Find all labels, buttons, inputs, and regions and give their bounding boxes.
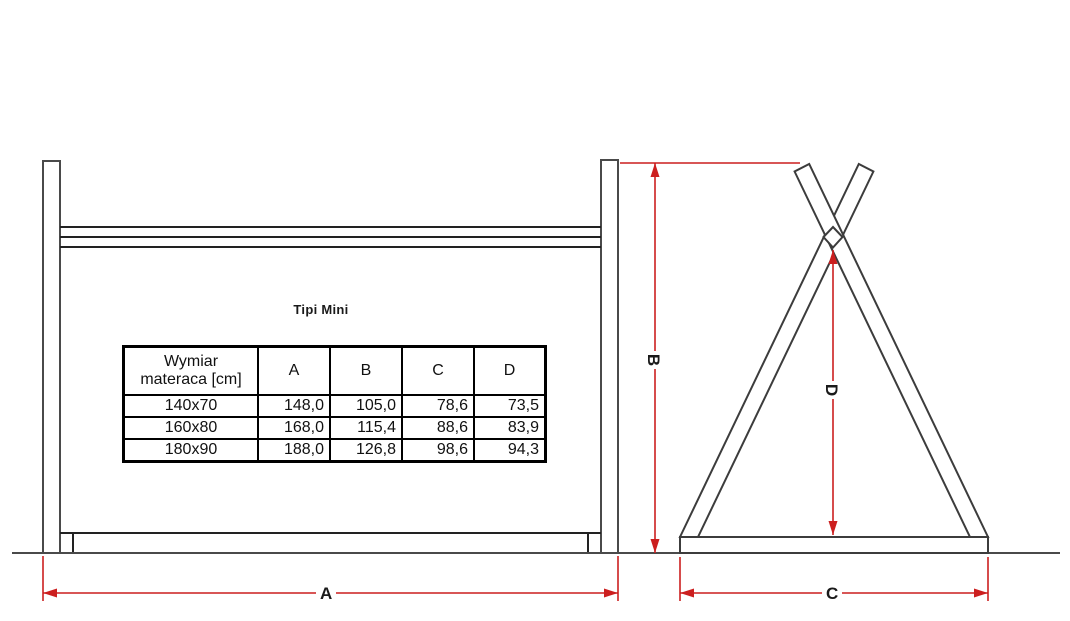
dimension-table: Wymiar materaca [cm] A B C D 140x70 148,… — [122, 345, 547, 463]
table-header-row: Wymiar materaca [cm] A B C D — [124, 347, 546, 396]
table-row: 180x90 188,0 126,8 98,6 94,3 — [124, 439, 546, 462]
cell-a: 148,0 — [258, 395, 330, 417]
dim-a-arrow-right — [604, 589, 618, 598]
cell-b: 126,8 — [330, 439, 402, 462]
cell-d: 83,9 — [474, 417, 546, 439]
dim-b-arrow-bottom — [651, 539, 660, 553]
table-row: 160x80 168,0 115,4 88,6 83,9 — [124, 417, 546, 439]
technical-drawing-page: Tipi Mini Wymiar materaca [cm] A B C D 1… — [0, 0, 1070, 621]
cell-a: 168,0 — [258, 417, 330, 439]
tipi-leg-left-leaning — [795, 164, 988, 537]
bed-left-post — [43, 161, 60, 553]
mattress-header-line1: Wymiar — [164, 353, 218, 370]
cell-c: 88,6 — [402, 417, 474, 439]
table-header-mattress-size: Wymiar materaca [cm] — [124, 347, 259, 396]
dim-label-d: D — [821, 381, 843, 399]
dim-c-arrow-right — [974, 589, 988, 598]
table-header-b: B — [330, 347, 402, 396]
bed-right-post — [601, 160, 618, 553]
drawing-title: Tipi Mini — [261, 302, 381, 317]
cell-size: 160x80 — [124, 417, 259, 439]
dim-label-b: B — [643, 351, 665, 369]
tipi-leg-right-leaning — [680, 164, 873, 537]
table-row: 140x70 148,0 105,0 78,6 73,5 — [124, 395, 546, 417]
cell-c: 98,6 — [402, 439, 474, 462]
table-header-a: A — [258, 347, 330, 396]
cell-d: 73,5 — [474, 395, 546, 417]
dim-label-a: A — [316, 584, 336, 603]
dim-label-c: C — [822, 584, 842, 603]
cell-c: 78,6 — [402, 395, 474, 417]
mattress-header-line2: materaca [cm] — [140, 371, 241, 388]
drawing-canvas — [0, 0, 1070, 621]
tipi-side-view — [680, 164, 988, 553]
cell-b: 115,4 — [330, 417, 402, 439]
cell-size: 140x70 — [124, 395, 259, 417]
cell-b: 105,0 — [330, 395, 402, 417]
cell-size: 180x90 — [124, 439, 259, 462]
table-header-d: D — [474, 347, 546, 396]
cell-a: 188,0 — [258, 439, 330, 462]
table-header-c: C — [402, 347, 474, 396]
dim-b-arrow-top — [651, 163, 660, 177]
dim-d-arrow-bottom — [829, 521, 838, 535]
tipi-base-bar — [680, 537, 988, 553]
cell-d: 94,3 — [474, 439, 546, 462]
dim-c-arrow-left — [680, 589, 694, 598]
dim-a-arrow-left — [43, 589, 57, 598]
